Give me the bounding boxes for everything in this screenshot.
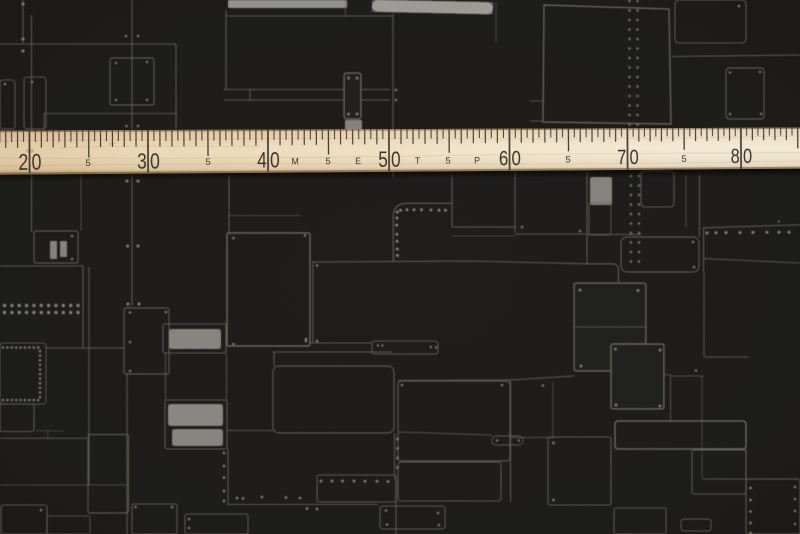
svg-text:8: 8 bbox=[731, 144, 740, 167]
svg-text:Е: Е bbox=[355, 156, 361, 166]
svg-text:5: 5 bbox=[205, 157, 210, 168]
svg-text:0: 0 bbox=[150, 150, 160, 175]
svg-text:5: 5 bbox=[85, 158, 90, 169]
svg-text:Р: Р bbox=[474, 155, 480, 165]
svg-text:0: 0 bbox=[511, 146, 521, 171]
svg-text:4: 4 bbox=[257, 149, 267, 174]
svg-text:6: 6 bbox=[499, 146, 509, 171]
svg-text:0: 0 bbox=[31, 150, 41, 176]
svg-text:7: 7 bbox=[617, 146, 626, 169]
svg-text:5: 5 bbox=[565, 155, 570, 166]
svg-text:5: 5 bbox=[325, 156, 330, 167]
svg-text:0: 0 bbox=[391, 148, 401, 173]
svg-text:Т: Т bbox=[415, 156, 421, 166]
svg-text:3: 3 bbox=[137, 150, 147, 175]
svg-text:0: 0 bbox=[270, 149, 280, 174]
svg-text:5: 5 bbox=[445, 155, 450, 166]
svg-text:0: 0 bbox=[629, 146, 638, 169]
svg-text:М: М bbox=[291, 157, 298, 167]
svg-text:5: 5 bbox=[681, 154, 686, 165]
svg-text:2: 2 bbox=[18, 150, 28, 176]
svg-text:0: 0 bbox=[743, 144, 752, 167]
svg-text:5: 5 bbox=[378, 148, 388, 173]
